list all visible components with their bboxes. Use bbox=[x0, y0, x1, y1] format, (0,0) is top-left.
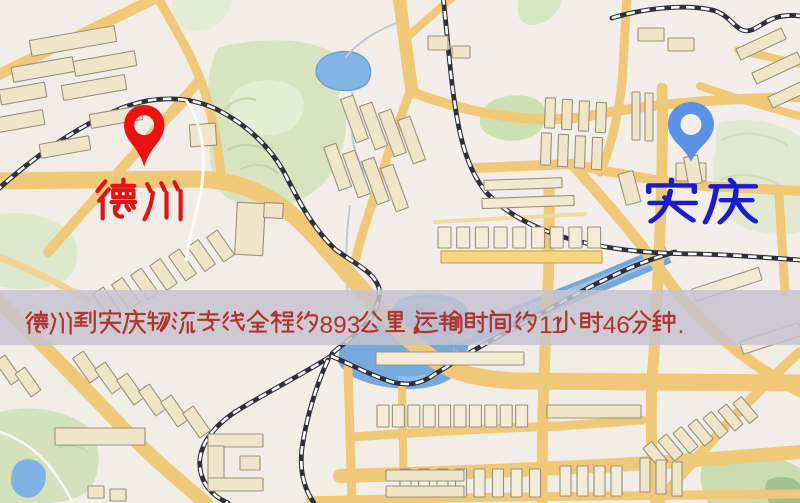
svg-text:893: 893 bbox=[320, 312, 361, 339]
svg-text:11: 11 bbox=[539, 312, 564, 339]
svg-text:.: . bbox=[678, 312, 685, 339]
svg-text:46: 46 bbox=[603, 312, 630, 339]
